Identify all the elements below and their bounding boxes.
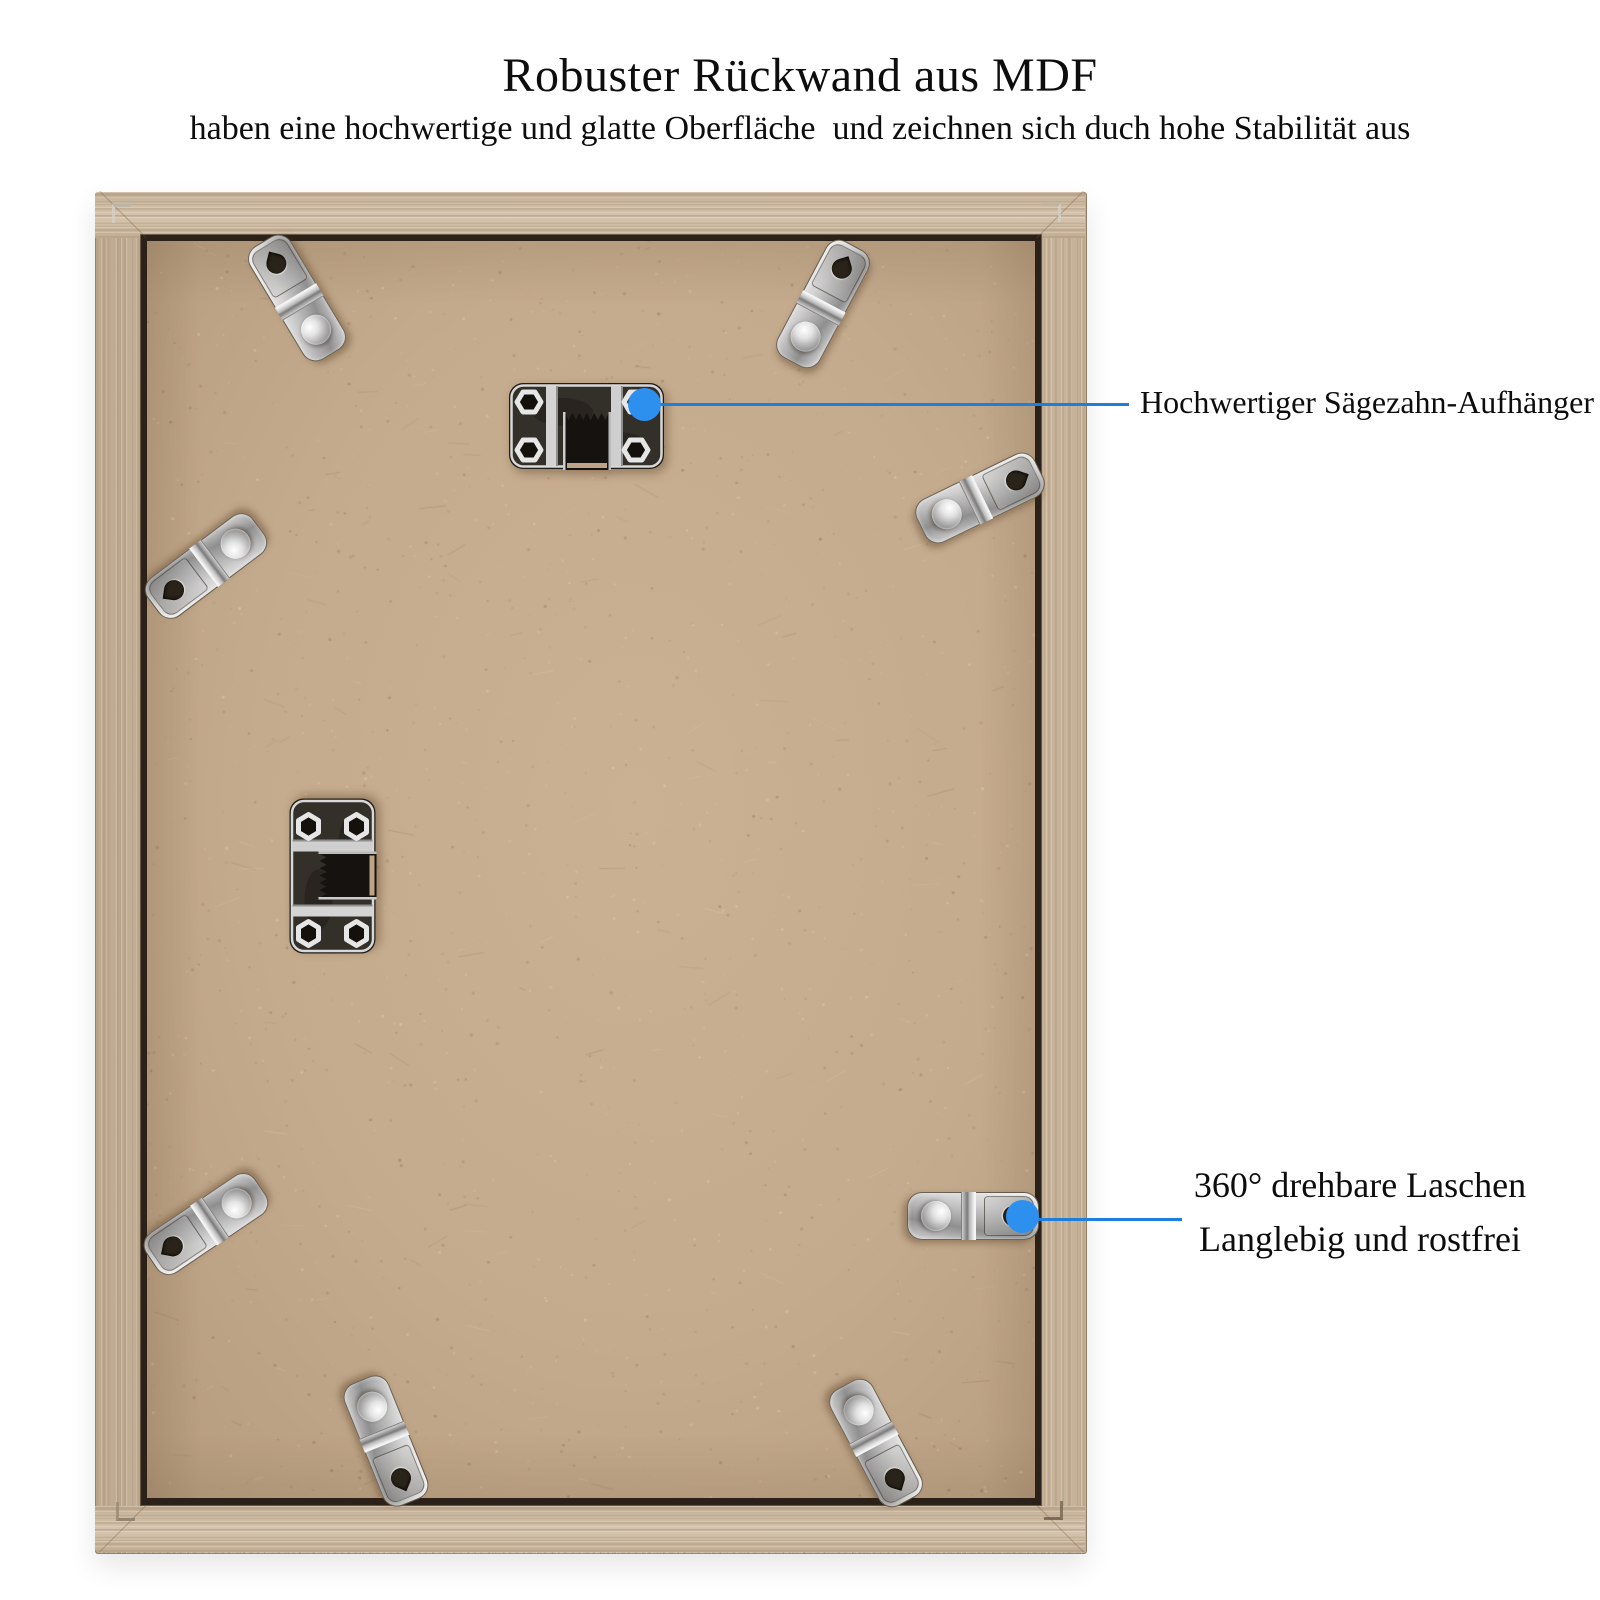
tab-teardrop-hole [1003, 468, 1028, 493]
callout-label-tabs-line2: Langlebig und rostfrei [1160, 1212, 1560, 1266]
corner-staple [1042, 203, 1061, 222]
corner-staple [112, 204, 131, 223]
tab-screw [927, 494, 967, 534]
wooden-frame-top-rail [95, 192, 1085, 238]
page-subtitle: haben eine hochwertige und glatte Oberfl… [0, 110, 1600, 148]
tab-screw [215, 523, 257, 565]
tab-teardrop-hole [882, 1466, 907, 1491]
tab-screw [216, 1182, 258, 1224]
tab-ridge [359, 1421, 409, 1453]
tab-teardrop-hole [161, 1235, 184, 1258]
callout-dot-sawtooth [628, 388, 661, 421]
callout-label-tabs: 360° drehbare Laschen Langlebig und rost… [1160, 1158, 1560, 1266]
tab-ridge [849, 1421, 898, 1457]
tab-screw [785, 316, 826, 357]
tab-screw [838, 1390, 879, 1431]
tab-screw [295, 309, 336, 350]
page-title: Robuster Rückwand aus MDF [0, 48, 1600, 103]
wooden-frame-bottom-rail [95, 1506, 1085, 1552]
tab-teardrop-hole [264, 252, 288, 276]
corner-staple [1044, 1501, 1063, 1520]
tab-screw [921, 1201, 951, 1231]
tab-screw [353, 1387, 392, 1426]
tab-teardrop-hole [163, 579, 186, 602]
tab-teardrop-hole [388, 1465, 414, 1491]
sawtooth-hanger [289, 798, 377, 955]
tab-teardrop-hole [829, 256, 854, 281]
callout-dot-tabs [1006, 1200, 1039, 1233]
product-photo-stage: Robuster Rückwand aus MDF haben eine hoc… [0, 0, 1600, 1600]
tab-ridge [959, 475, 994, 525]
callout-label-tabs-line1: 360° drehbare Laschen [1160, 1158, 1560, 1212]
callout-line-sawtooth [659, 403, 1129, 406]
callout-label-sawtooth: Hochwertiger Sägezahn-Aufhänger [1140, 384, 1594, 421]
corner-staple [116, 1502, 135, 1521]
tab-ridge [961, 1192, 976, 1240]
